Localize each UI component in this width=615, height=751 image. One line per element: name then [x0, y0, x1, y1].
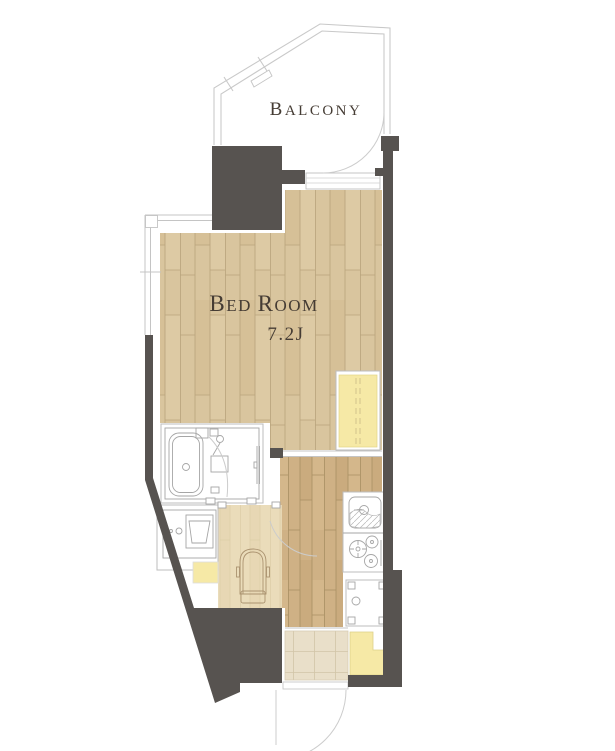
balcony-label-rest: ALCONY	[285, 103, 363, 119]
wall-top-right-head	[381, 136, 399, 151]
towel-cabinet	[193, 562, 218, 583]
wall-bottom-bar	[348, 675, 402, 687]
balcony-door-swing-arc	[323, 112, 384, 173]
balcony-rail-ticks	[224, 57, 267, 91]
floor-plan-canvas: BALCONY BED ROOM 7.2J	[0, 0, 615, 751]
balcony-drain-box	[251, 70, 272, 87]
balcony-inner-rail	[221, 31, 384, 145]
wall-divider-stub	[270, 448, 283, 458]
wall-top-left-stub	[282, 170, 305, 184]
shoe-cabinet	[350, 632, 385, 675]
balcony-door	[306, 112, 384, 189]
wall-right-main	[383, 183, 393, 570]
bedroom-hallway-divider	[283, 451, 382, 457]
balcony-label-initial: B	[270, 99, 285, 120]
toilet-room-floor	[218, 505, 282, 608]
entrance-tile	[285, 631, 348, 680]
wall-top-left-block	[212, 146, 282, 230]
wall-top-right-stub	[375, 168, 383, 176]
bedroom-size-label: 7.2J	[267, 324, 304, 345]
entrance-door	[276, 682, 348, 751]
balcony-label: BALCONY	[270, 99, 363, 120]
washer-pan	[346, 580, 388, 626]
wall-top-right-neck	[383, 151, 393, 183]
window-corner-post	[146, 216, 158, 228]
entrance-door-leaf	[283, 682, 348, 689]
bathroom-door-stub-right	[247, 498, 256, 504]
bathroom-door-stub-left	[206, 498, 215, 504]
wall-right-bottom	[383, 570, 402, 687]
bedroom-label-ed: ED	[226, 296, 257, 315]
toilet-door-stub-left	[218, 502, 226, 508]
window-left-lines	[145, 215, 151, 335]
bedroom-label-r: R	[258, 291, 275, 316]
bedroom-label-b: B	[209, 291, 226, 316]
balcony-railing	[214, 24, 390, 145]
toilet-door-stub-right	[272, 502, 280, 508]
balcony-outer-rail	[214, 24, 390, 145]
bedroom-label-oom: OOM	[274, 296, 318, 315]
kitchen	[343, 492, 386, 572]
entrance-door-swing-arc	[276, 690, 346, 751]
bathroom	[161, 424, 263, 504]
floor-plan: BALCONY BED ROOM 7.2J	[0, 0, 615, 751]
balcony-door-sill	[306, 173, 380, 189]
closet	[336, 371, 380, 450]
closet-fill	[339, 375, 377, 447]
